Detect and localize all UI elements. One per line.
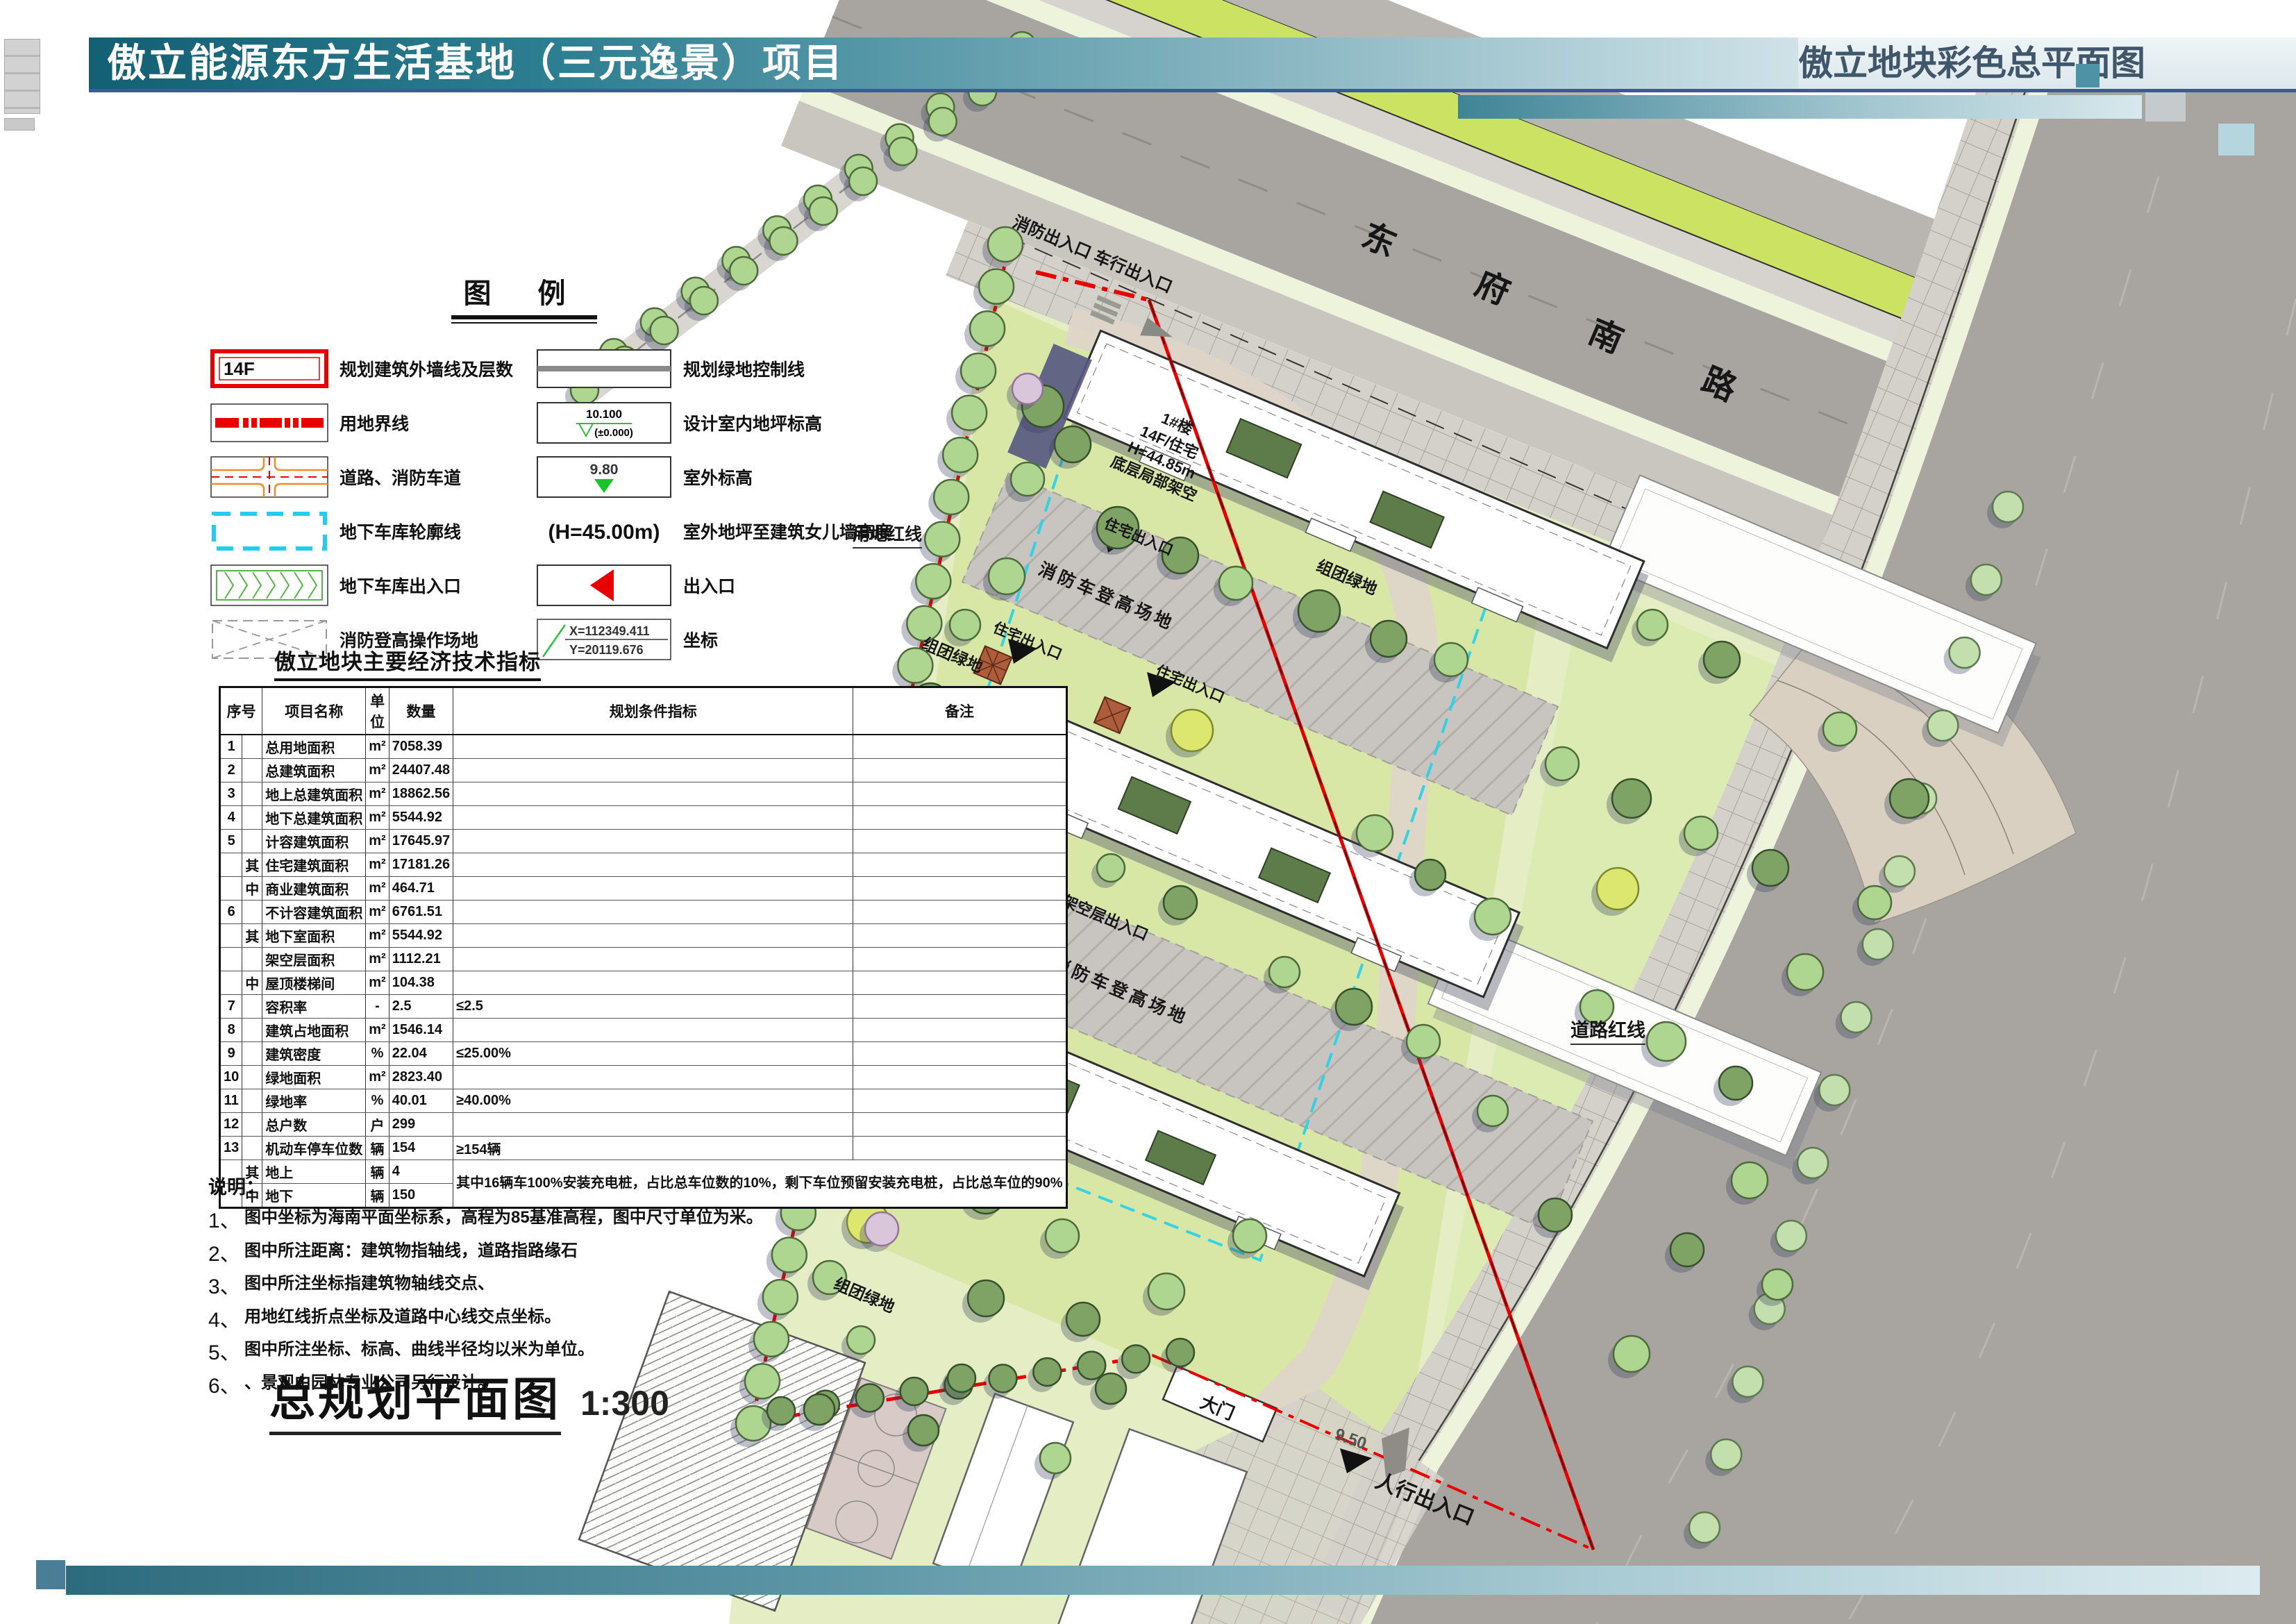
table-row: 8建筑占地面积m²1546.14: [220, 1019, 1067, 1042]
indoor-elevation-symbol: 10.100 (±0.000): [535, 401, 673, 444]
note-item: 3、图中所注坐标指建筑物轴线交点、: [208, 1272, 791, 1303]
plan-title-text: 总规划平面图: [269, 1362, 561, 1435]
garage-entrance-symbol: [208, 564, 330, 607]
sheet-subtitle: 傲立地块彩色总平面图: [1798, 37, 2296, 89]
green-control-line-symbol: [535, 349, 673, 389]
table-title-wrap: 傲立地块主要经济技术指标: [274, 644, 635, 676]
legend: 图 例 14F 规划建筑外墙线及层数 规划绿地控制线: [208, 271, 840, 667]
svg-text:10.100: 10.100: [586, 408, 622, 421]
table-row: 7容积率-2.5≤2.5: [220, 995, 1067, 1019]
header-accent-bar: [1458, 95, 2142, 119]
table-header-row: 序号项目名称 单位数量 规划条件指标备注: [220, 687, 1067, 735]
plan-scale: 1:300: [580, 1383, 669, 1423]
drawing-sheet: 傲立地块彩色总平面图 傲立能源东方生活基地（三元逸景）项目 图 例 14F 规划…: [0, 0, 2296, 1624]
svg-text:(±0.000): (±0.000): [594, 427, 633, 439]
note-item: 2、图中所注距离：建筑物指轴线，道路指路缘石: [208, 1239, 791, 1270]
header-right-panel: 傲立地块彩色总平面图: [1798, 37, 2296, 89]
legend-item-entrance-arrow: 出入口: [535, 558, 840, 612]
outdoor-elevation-symbol: 9.80: [535, 455, 673, 499]
garage-outline-symbol: [208, 510, 330, 553]
table-row: 中商业建筑面积m²464.71: [220, 877, 1067, 901]
table-row: 其住宅建筑面积m²17181.26: [220, 853, 1067, 877]
note-item: 1、图中坐标为海南平面坐标系，高程为85基准高程，图中尺寸单位为米。: [208, 1206, 791, 1237]
legend-title: 图 例: [441, 271, 607, 311]
svg-text:14F: 14F: [224, 358, 255, 379]
header-light-teal-square: [2218, 124, 2254, 156]
legend-item-green-control: 规划绿地控制线: [535, 342, 840, 396]
table-row: 9建筑密度%22.04≤25.00%: [220, 1042, 1067, 1066]
plan-title: 总规划平面图 1:300: [269, 1362, 669, 1435]
footer-bar: [66, 1566, 2260, 1595]
header-divider-line: [89, 89, 2296, 92]
land-boundary-symbol: [208, 403, 330, 443]
table-row: 11绿地率%40.01≥40.00%: [220, 1089, 1067, 1113]
legend-title-underline: [451, 315, 597, 324]
table-row: 6不计容建筑面积m²6761.51: [220, 901, 1067, 924]
legend-item-building-outline: 14F 规划建筑外墙线及层数: [208, 342, 535, 396]
table-row: 5计容建筑面积m²17645.97: [220, 830, 1067, 853]
header-title-bar: 傲立能源东方生活基地（三元逸景）项目: [89, 37, 1798, 89]
table-row: 3地上总建筑面积m²18862.56: [220, 782, 1067, 806]
legend-item-indoor-elevation: 10.100 (±0.000) 设计室内地坪标高: [535, 396, 840, 450]
svg-text:9.80: 9.80: [590, 462, 619, 478]
note-item: 4、用地红线折点坐标及道路中心线交点坐标。: [208, 1305, 791, 1336]
header-teal-square: [2076, 64, 2100, 87]
legend-item-road-fire-lane: 道路、消防车道: [208, 450, 535, 504]
table-row: 10绿地面积m²2823.40: [220, 1066, 1067, 1089]
legend-item-parapet-height: (H=45.00m) 室外地坪至建筑女儿墙高度: [535, 504, 840, 558]
legend-item-garage-outline: 地下车库轮廓线: [208, 504, 535, 558]
parapet-height-symbol: (H=45.00m): [535, 510, 673, 553]
table-row: 12总户数户299: [220, 1113, 1067, 1137]
table-row: 其地下室面积m²5544.92: [220, 924, 1067, 948]
legend-item-outdoor-elevation: 9.80 室外标高: [535, 450, 840, 504]
table-row: 13机动车停车位数辆154≥154辆: [220, 1137, 1067, 1160]
notes-title: 说明：: [208, 1172, 791, 1199]
project-title: 傲立能源东方生活基地（三元逸景）项目: [89, 37, 1798, 89]
building-outline-symbol: 14F: [208, 349, 330, 389]
svg-text:(H=45.00m): (H=45.00m): [548, 521, 660, 544]
svg-text:X=112349.411: X=112349.411: [569, 624, 650, 638]
table-row: 架空层面积m²1112.21: [220, 948, 1067, 971]
footer-square: [36, 1560, 65, 1589]
road-fire-lane-symbol: [208, 455, 330, 499]
table-row: 2总建筑面积m²24407.48: [220, 759, 1067, 782]
table-title: 傲立地块主要经济技术指标: [274, 650, 541, 681]
legend-item-land-boundary: 用地界线: [208, 396, 535, 450]
header-gray-block: [2145, 92, 2186, 122]
table-row: 4地下总建筑面积m²5544.92: [220, 806, 1067, 830]
road-red-line-label: 道路红线: [1570, 1015, 1645, 1045]
legend-item-garage-entrance: 地下车库出入口: [208, 558, 535, 612]
economic-table: 序号项目名称 单位数量 规划条件指标备注 1总用地面积m²7058.39 2总建…: [219, 686, 670, 1209]
table-row: 1总用地面积m²7058.39: [220, 735, 1067, 759]
table-row: 中屋顶楼梯间m²104.38: [220, 971, 1067, 995]
entrance-arrow-symbol: [535, 564, 673, 607]
